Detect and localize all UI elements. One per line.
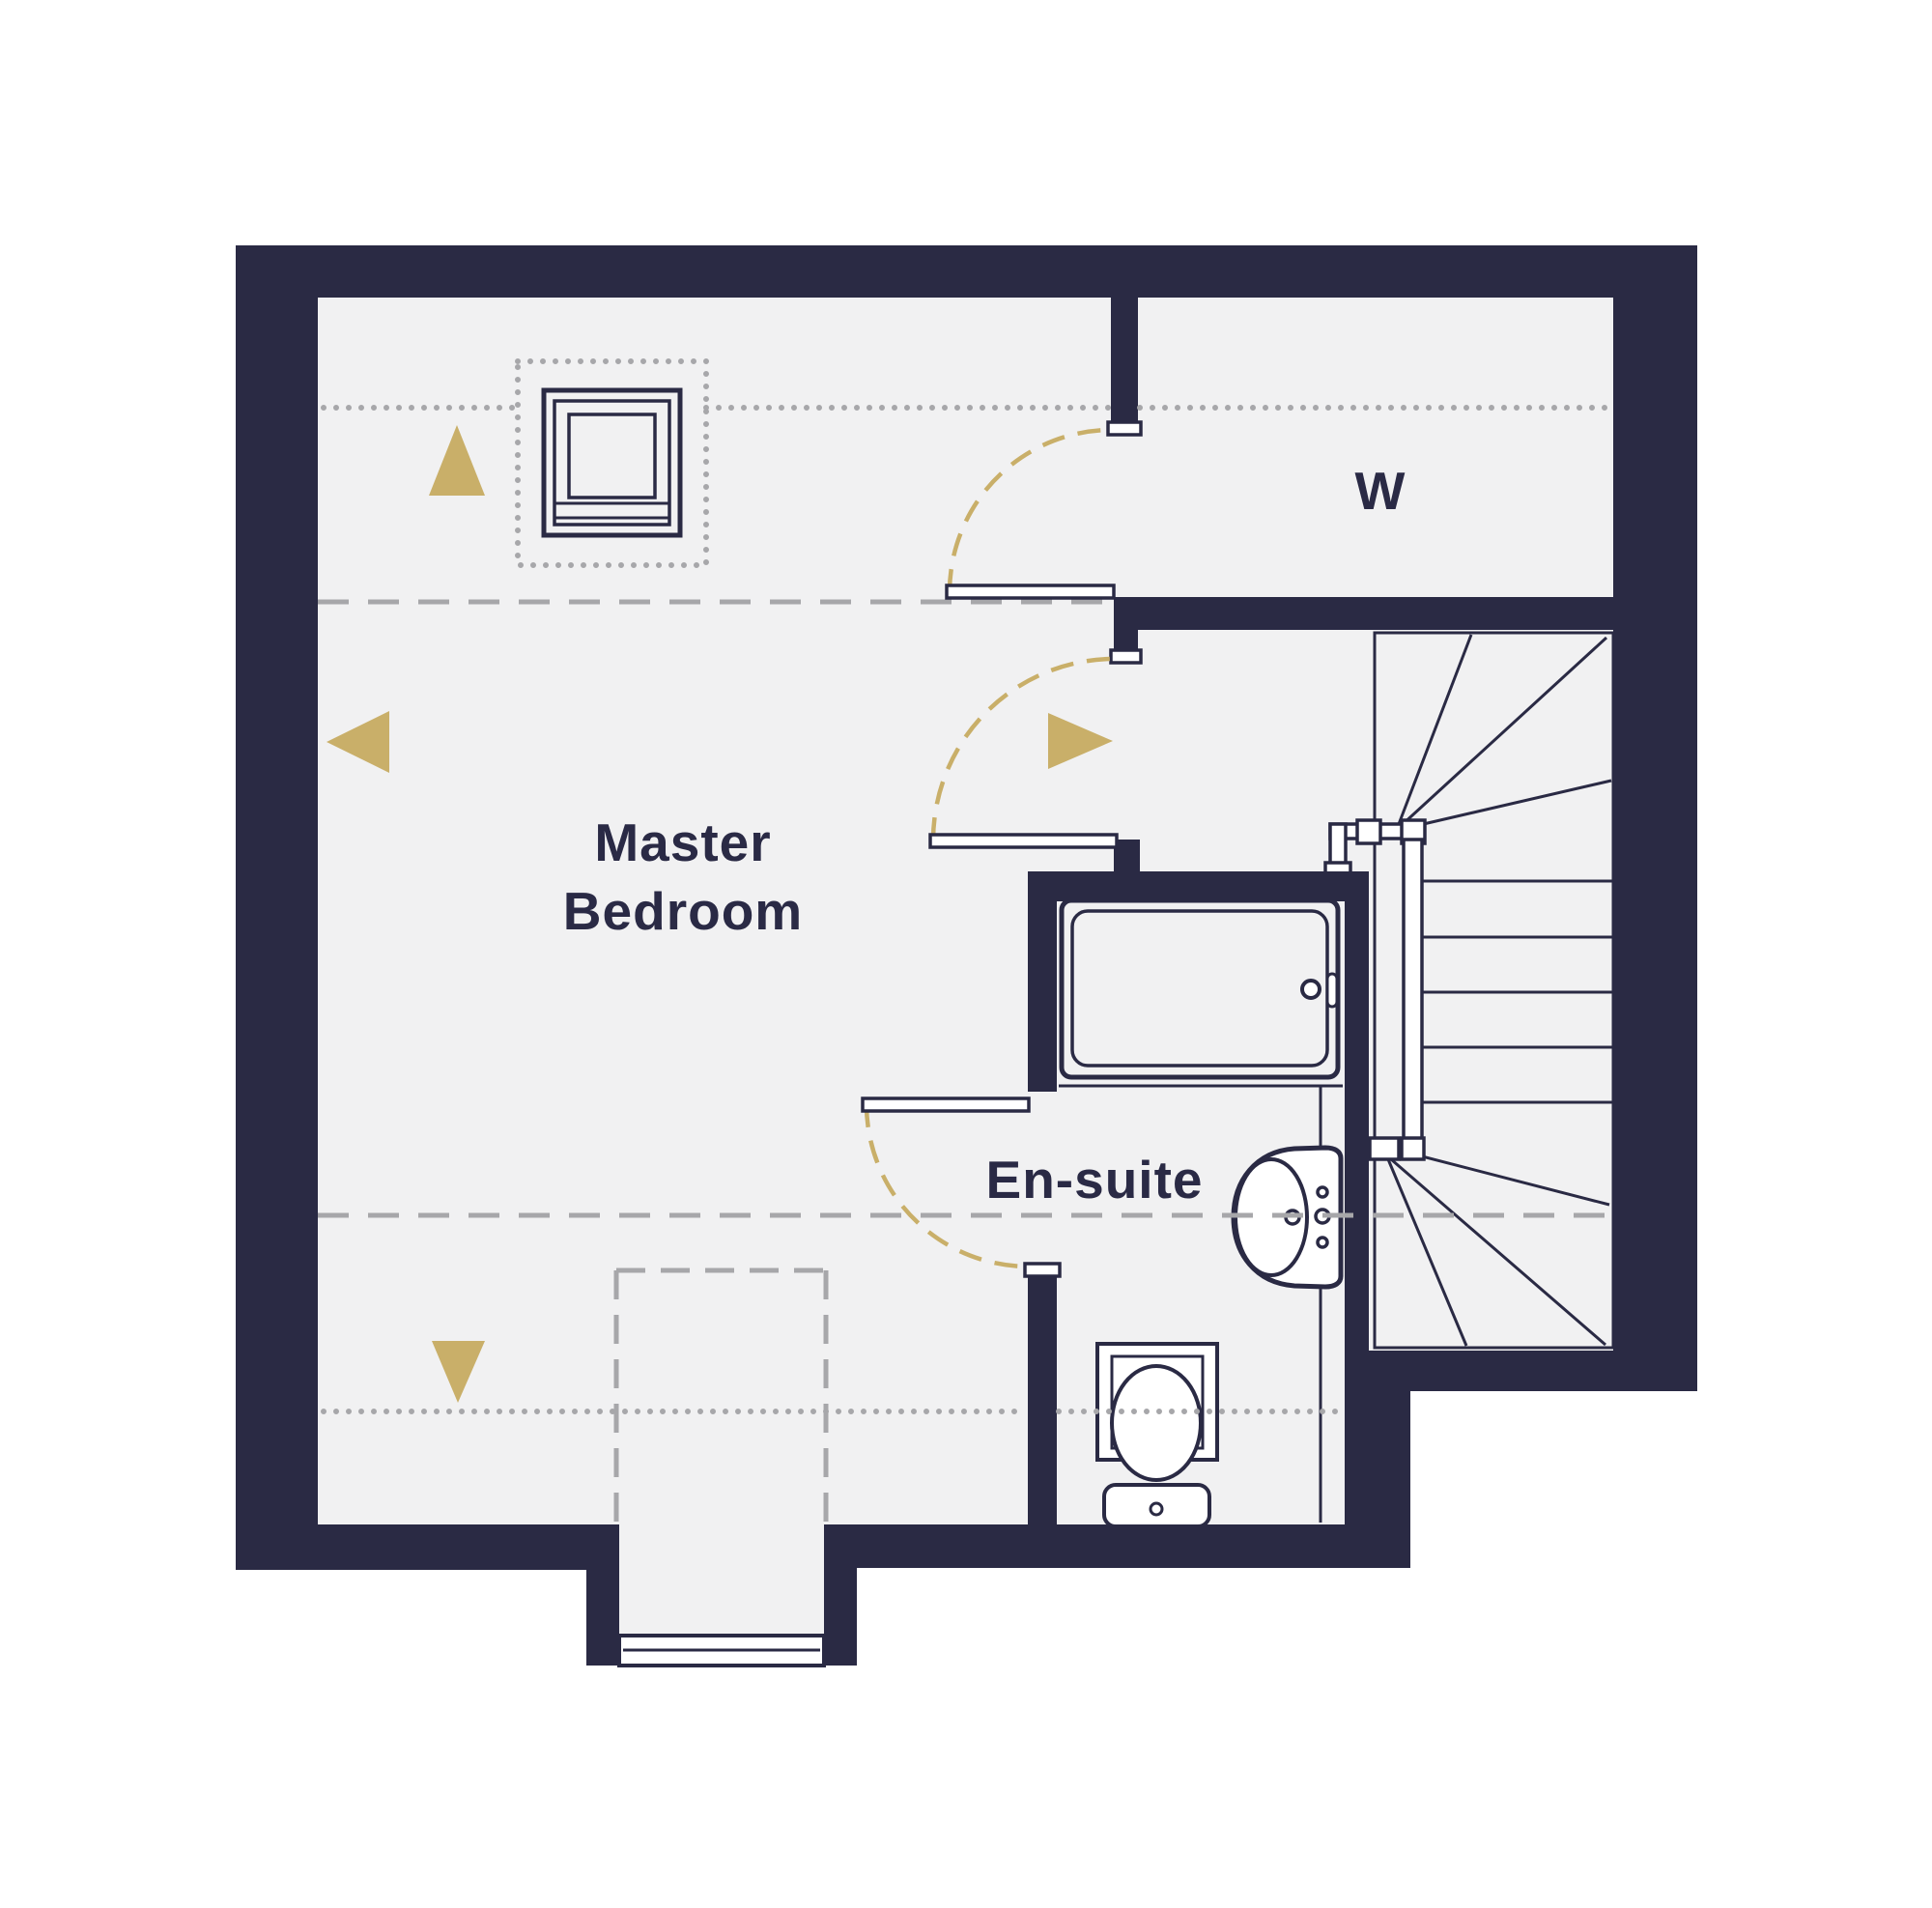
- bath-tap: [1302, 981, 1320, 998]
- toilet-flush: [1151, 1503, 1162, 1515]
- floor-dormer-bay: [619, 1524, 824, 1636]
- wall-right: [1613, 245, 1697, 1391]
- wall-ensuite-left-lower: [1028, 1275, 1057, 1524]
- floor-stairwell: [1345, 630, 1613, 1351]
- skylight-window-icon: [544, 390, 680, 535]
- wall-door-stub: [1114, 630, 1138, 650]
- wall-bedroom-wardrobe: [1111, 298, 1138, 424]
- floor-plan-drawing: Master Bedroom En-suite W: [0, 0, 1932, 1908]
- wall-ensuite-right: [1345, 871, 1369, 1524]
- sink-tap-hole: [1318, 1187, 1327, 1197]
- wall-left: [236, 245, 318, 1570]
- wall-stair-bottom: [1369, 1351, 1697, 1391]
- stair-newel-post: [1402, 1138, 1424, 1159]
- wall-dormer-left-jamb: [586, 1524, 619, 1666]
- door-leaf-wardrobe: [947, 585, 1114, 598]
- label-master-bedroom-line2: Bedroom: [563, 881, 803, 941]
- door-leaf-ensuite: [863, 1098, 1029, 1111]
- stair-handrail-bar: [1404, 840, 1422, 1140]
- wall-end-cap: [1025, 1264, 1060, 1276]
- wall-wardrobe-landing: [1114, 597, 1613, 630]
- label-wardrobe: W: [1355, 461, 1406, 521]
- toilet-icon: [1097, 1344, 1217, 1526]
- sink-tap-hole: [1318, 1238, 1327, 1247]
- wall-end-cap: [1108, 422, 1141, 435]
- wall-dormer-right-jamb: [824, 1524, 857, 1666]
- wall-bottom-left: [236, 1524, 586, 1570]
- wall-top: [236, 245, 1697, 298]
- stair-handrail-elbow: [1330, 824, 1346, 865]
- stair-newel-post: [1357, 820, 1380, 843]
- dormer-window-icon: [619, 1636, 824, 1666]
- skylight-glass: [569, 414, 655, 498]
- toilet-bowl: [1112, 1366, 1201, 1480]
- wall-end-cap: [1111, 650, 1141, 663]
- wall-ensuite-left-upper: [1028, 901, 1057, 1092]
- bath-plug: [1327, 974, 1337, 1007]
- label-master-bedroom-line1: Master: [594, 812, 771, 872]
- label-ensuite: En-suite: [986, 1150, 1204, 1210]
- bath-inner: [1072, 911, 1327, 1066]
- door-leaf-bedroom: [930, 835, 1117, 847]
- wall-bottom-right: [857, 1524, 1410, 1568]
- floor-plan-page: Master Bedroom En-suite W: [0, 0, 1932, 1908]
- wall-ensuite-top: [1028, 871, 1369, 901]
- stair-handrail-cap: [1370, 1138, 1399, 1159]
